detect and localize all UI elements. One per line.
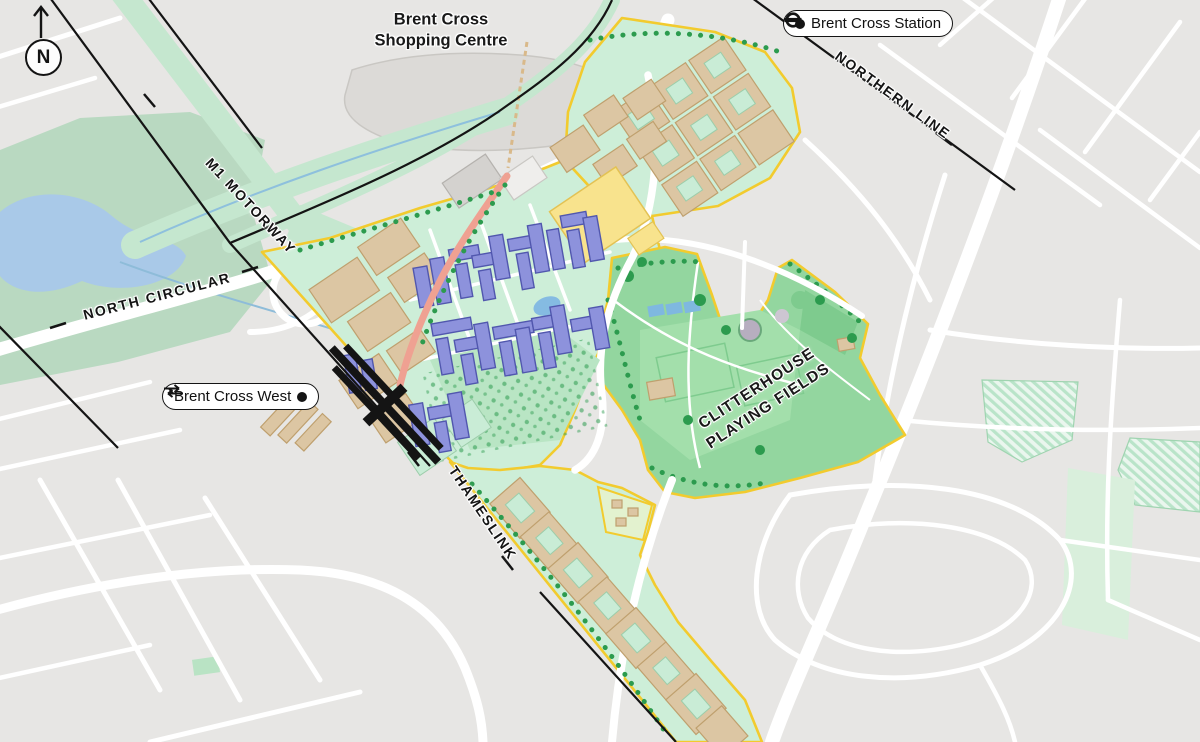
station-dot	[297, 392, 307, 402]
brent-cross-station-label: Brent Cross Station	[811, 15, 941, 32]
compass-north-indicator: N	[25, 39, 62, 76]
compass-letter: N	[37, 47, 51, 69]
brent-cross-west-pill[interactable]: Brent Cross West	[162, 383, 319, 410]
national-rail-icon	[163, 384, 184, 398]
underground-roundel-icon	[784, 11, 802, 29]
map-canvas: N Brent Cross Shopping Centre CLITTERHOU…	[0, 0, 1200, 742]
map-graphics	[0, 0, 1200, 742]
brent-cross-station-pill[interactable]: Brent Cross Station	[783, 10, 953, 37]
shopping-centre-label: Brent Cross Shopping Centre	[375, 9, 508, 50]
brent-cross-west-label: Brent Cross West	[174, 388, 291, 405]
